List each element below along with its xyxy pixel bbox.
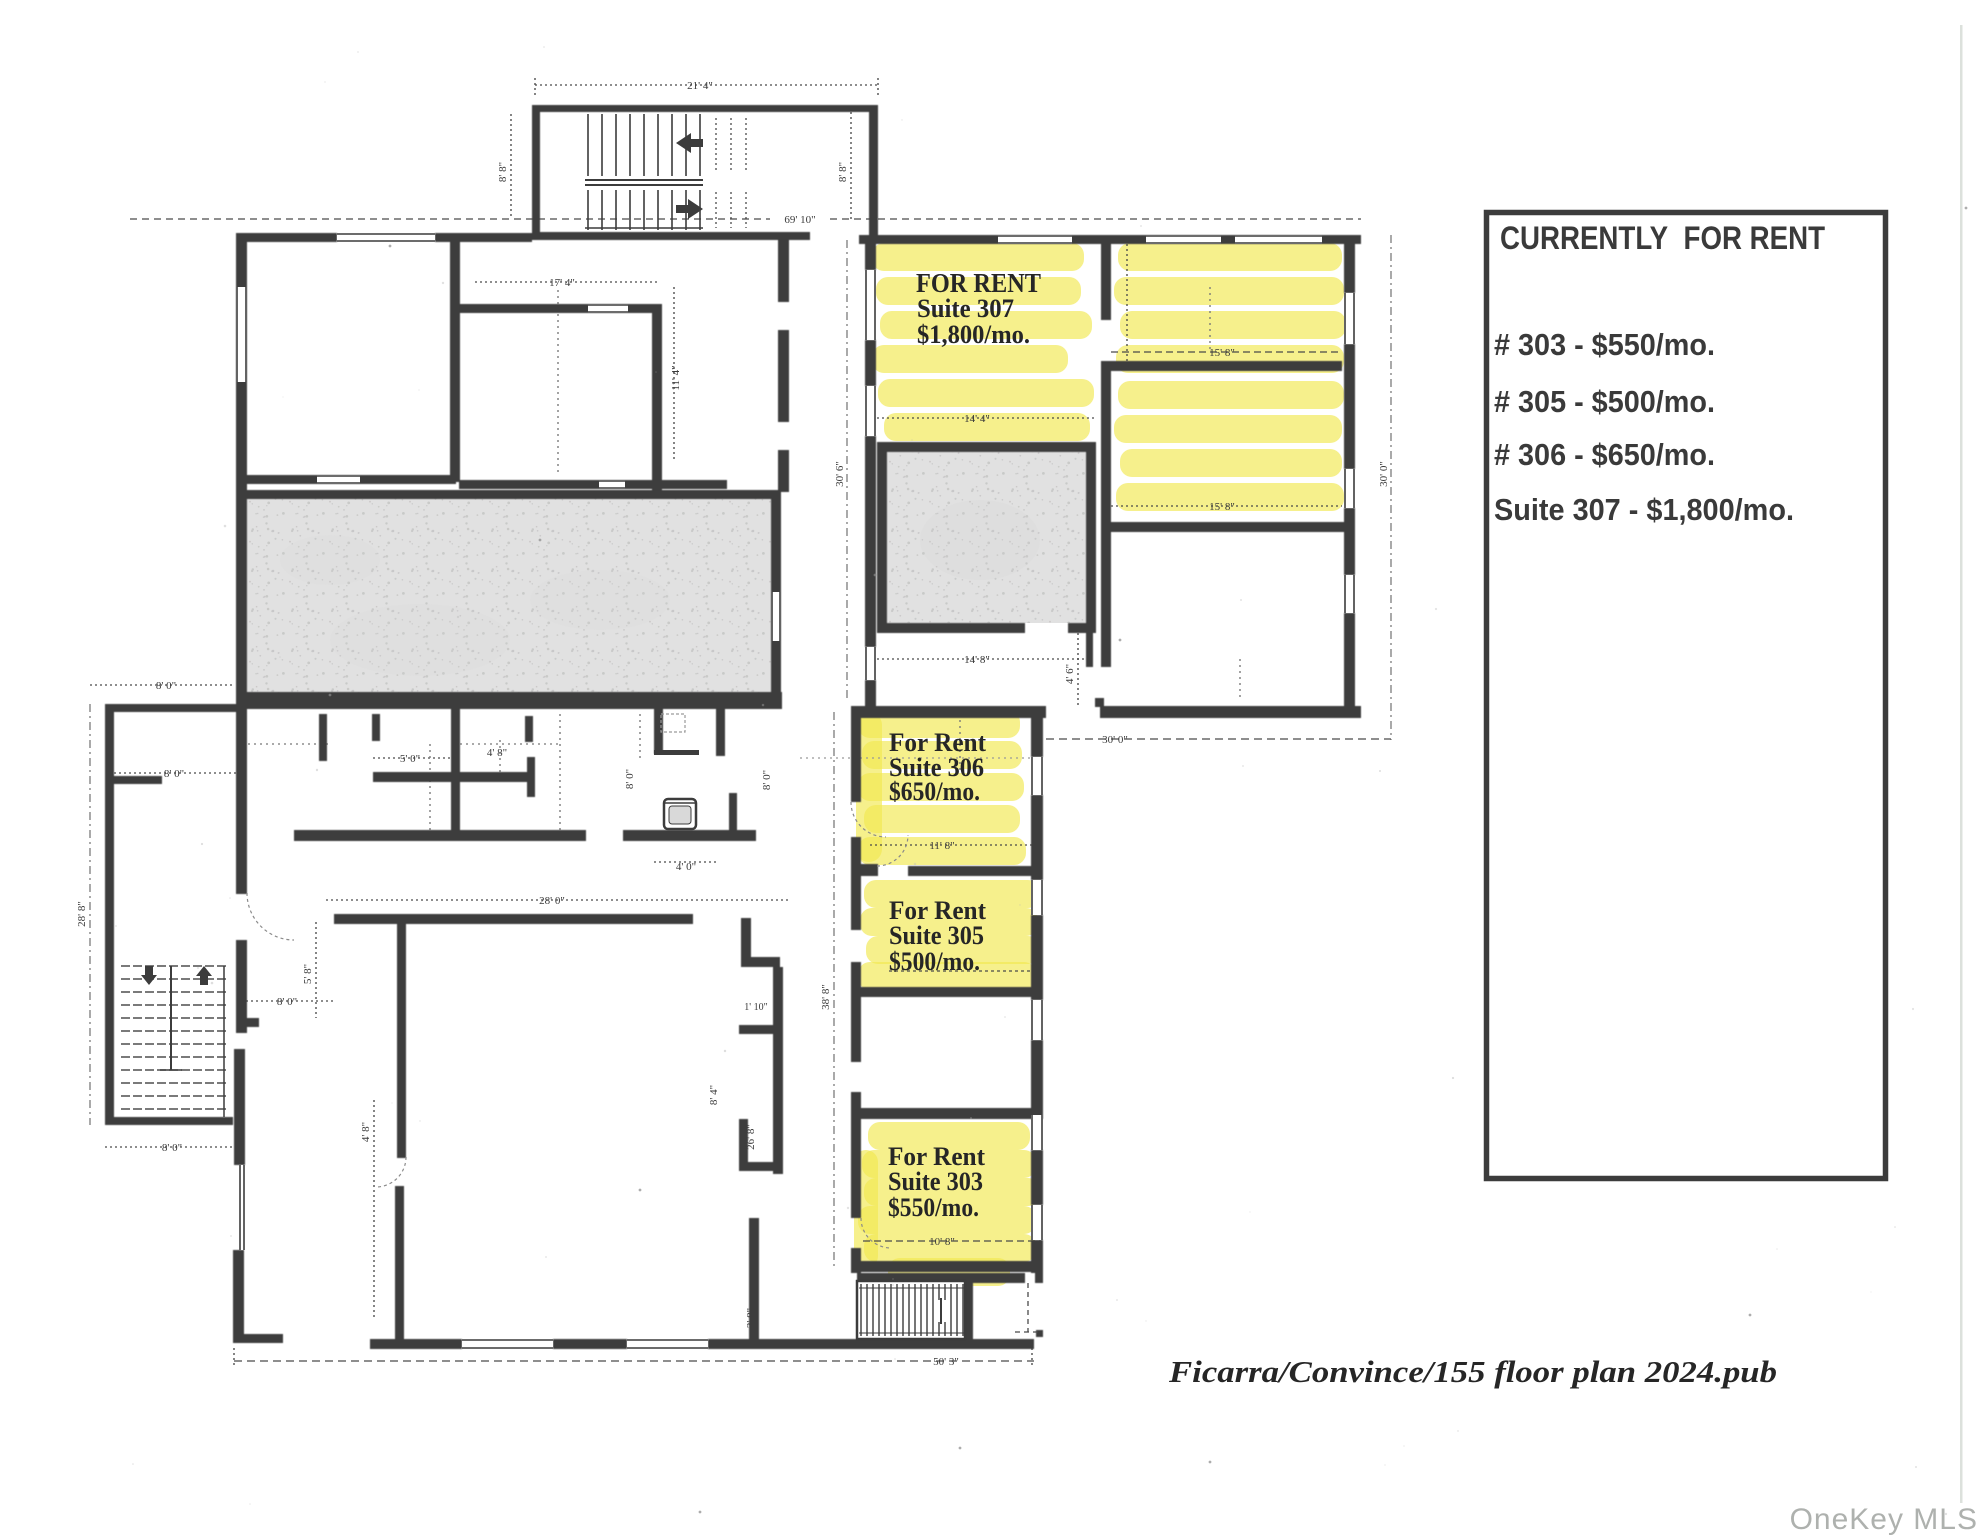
- svg-text:# 303 - $550/mo.: # 303 - $550/mo.: [1494, 327, 1715, 362]
- svg-text:8' 4": 8' 4": [708, 1085, 720, 1105]
- svg-text:10' 8": 10' 8": [929, 1236, 955, 1248]
- svg-text:# 306 - $650/mo.: # 306 - $650/mo.: [1494, 437, 1715, 472]
- svg-text:8' 0": 8' 0": [156, 680, 176, 692]
- svg-text:14' 8": 14' 8": [964, 654, 990, 666]
- svg-text:1' 10": 1' 10": [744, 1002, 767, 1013]
- svg-text:4' 8": 4' 8": [360, 1122, 372, 1142]
- svg-text:38' 8": 38' 8": [820, 984, 832, 1010]
- svg-text:11' 4": 11' 4": [670, 365, 682, 390]
- svg-text:8' 0": 8' 0": [277, 996, 297, 1008]
- svg-text:30' 6": 30' 6": [834, 461, 846, 487]
- svg-text:5' 8": 5' 8": [302, 964, 314, 984]
- svg-text:Suite 307 - $1,800/mo.: Suite 307 - $1,800/mo.: [1494, 492, 1794, 527]
- svg-text:28' 0": 28' 0": [539, 895, 565, 907]
- svg-text:15' 8": 15' 8": [1209, 347, 1235, 359]
- svg-text:$500/mo.: $500/mo.: [889, 947, 980, 976]
- svg-text:21' 4": 21' 4": [687, 80, 713, 92]
- svg-text:69' 10": 69' 10": [784, 214, 815, 226]
- svg-text:8' 0": 8' 0": [164, 768, 184, 780]
- svg-text:4' 6": 4' 6": [1064, 664, 1076, 684]
- svg-text:30' 0": 30' 0": [1102, 734, 1128, 746]
- svg-text:8' 8": 8' 8": [837, 162, 849, 182]
- svg-text:8' 0": 8' 0": [761, 770, 773, 790]
- svg-text:28' 8": 28' 8": [76, 901, 88, 927]
- svg-text:5' 0": 5' 0": [400, 753, 420, 765]
- svg-text:11' 8": 11' 8": [929, 840, 954, 852]
- svg-text:15' 8": 15' 8": [1209, 501, 1235, 513]
- svg-text:# 305 - $500/mo.: # 305 - $500/mo.: [1494, 384, 1715, 419]
- svg-text:14' 4": 14' 4": [964, 413, 990, 425]
- svg-text:8' 8": 8' 8": [497, 162, 509, 182]
- svg-text:17' 4": 17' 4": [549, 277, 575, 289]
- svg-text:8' 0": 8' 0": [162, 1142, 182, 1154]
- svg-text:Suite 307: Suite 307: [917, 294, 1014, 323]
- svg-text:8' 0": 8' 0": [624, 769, 636, 789]
- svg-text:OneKey MLS: OneKey MLS: [1790, 1503, 1978, 1536]
- svg-text:Suite 305: Suite 305: [889, 921, 984, 950]
- svg-text:Ficarra/Convince/155 floor pla: Ficarra/Convince/155 floor plan 2024.pub: [1168, 1354, 1777, 1389]
- svg-text:Suite 303: Suite 303: [888, 1167, 983, 1196]
- svg-text:4' 0": 4' 0": [676, 861, 696, 873]
- svg-text:$550/mo.: $550/mo.: [888, 1193, 979, 1222]
- svg-text:30' 0": 30' 0": [1378, 461, 1390, 487]
- svg-text:$650/mo.: $650/mo.: [889, 777, 980, 806]
- svg-text:$1,800/mo.: $1,800/mo.: [917, 320, 1030, 349]
- svg-text:4' 8": 4' 8": [487, 747, 507, 759]
- svg-text:CURRENTLY FOR RENT: CURRENTLY FOR RENT: [1500, 220, 1825, 256]
- svg-text:50' 3": 50' 3": [933, 1356, 959, 1368]
